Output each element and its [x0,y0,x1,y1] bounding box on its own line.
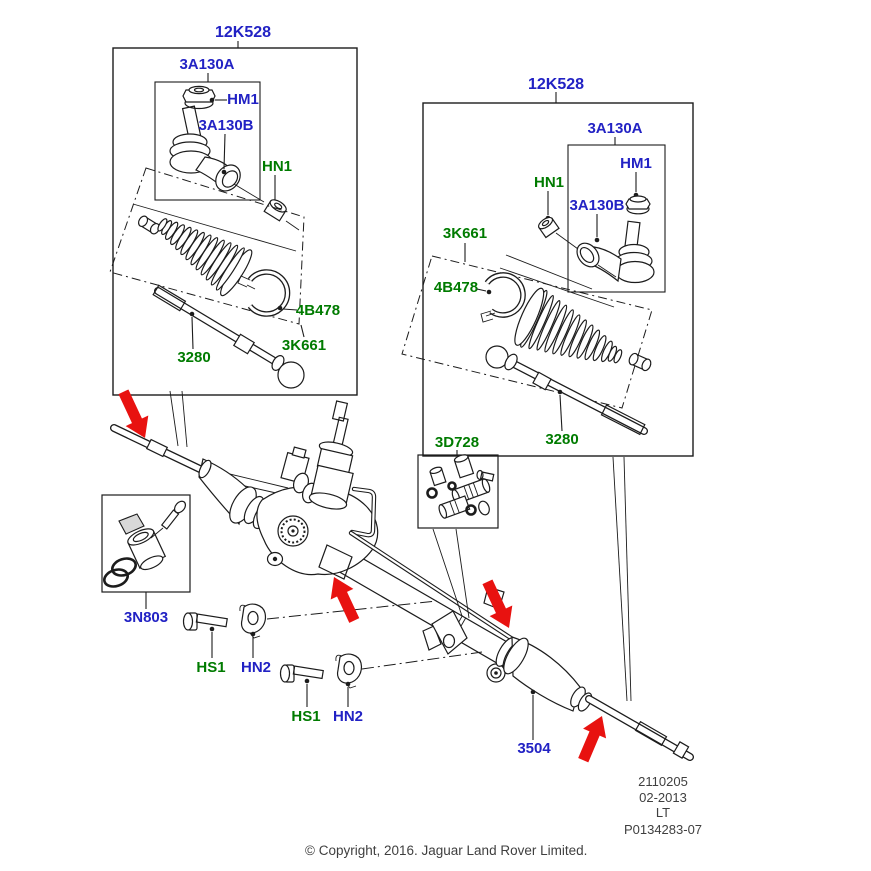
doc-variant: LT [656,805,670,820]
part-label-3504: 3504 [517,740,551,757]
part-label-3280-left: 3280 [177,349,210,366]
doc-date: 02-2013 [639,790,687,805]
pointer-arrow-tube [476,576,520,633]
part-label-3n803: 3N803 [124,609,168,626]
part-label-hn2-rear: HN2 [333,708,363,725]
doc-plate-number: P0134283-07 [624,822,702,837]
part-label-12k528-left: 12K528 [215,24,271,41]
bolt-drawing-front [184,613,228,630]
part-label-3a130a-left: 3A130A [179,56,234,73]
part-label-3a130b-left: 3A130B [198,117,253,134]
input-shaft-drawing [308,401,354,512]
small-nut-drawing-right [628,352,653,372]
left-box-leader-line [170,391,178,446]
boot-clamp-drawing-right [481,275,523,322]
right-assembly-box: 12K528 3A130A HM1 3A130B HN1 3K661 4B478 [402,76,693,456]
doc-info: 2110205 02-2013 LT P0134283-07 [624,774,702,837]
part-label-3d728: 3D728 [435,434,479,451]
parts-diagram-page: 12K528 3A130A HM1 3A130B HN1 [0,0,871,871]
fittings-drawing [428,453,494,519]
part-label-hn1-right: HN1 [534,174,564,191]
part-label-12k528-right: 12K528 [528,76,584,93]
part-label-hs1-front: HS1 [196,659,225,676]
part-label-3a130a-right: 3A130A [587,120,642,137]
part-label-hm1-left: HM1 [227,91,259,108]
left-assembly-box: 12K528 3A130A HM1 3A130B HN1 [110,24,357,395]
small-nut-drawing-left [137,215,161,236]
part-label-3k661-right: 3K661 [443,225,487,242]
part-label-3k661-left: 3K661 [282,337,326,354]
part-label-hs1-rear: HS1 [291,708,320,725]
part-label-4b478-right: 4B478 [434,279,478,296]
doc-number: 2110205 [638,774,688,789]
bolt-drawing-rear [281,665,324,682]
steering-gear-drawing [114,401,690,758]
lock-nut-drawing-left [264,197,288,221]
flange-nut-drawing-right [626,196,650,214]
diagram-canvas: 12K528 3A130A HM1 3A130B HN1 [0,0,871,871]
sensor-drawing [102,499,188,589]
flange-nut-drawing-left [183,86,215,108]
part-label-4b478-left: 4B478 [296,302,340,319]
part-label-hn2-front: HN2 [241,659,271,676]
sensor-box: 3N803 [102,495,190,626]
tie-rod-end-drawing-right [573,221,654,282]
part-label-hn1-left: HN1 [262,158,292,175]
copyright-notice: © Copyright, 2016. Jaguar Land Rover Lim… [305,843,587,858]
left-box-leader-line [182,391,187,447]
lock-nut-drawing-right [537,215,559,237]
part-label-3a130b-right: 3A130B [569,197,624,214]
pointer-arrow-right-tie-rod [572,711,614,765]
part-label-hm1-right: HM1 [620,155,652,172]
part-label-3280-right: 3280 [545,431,578,448]
inner-tie-rod-drawing-right [486,346,645,434]
